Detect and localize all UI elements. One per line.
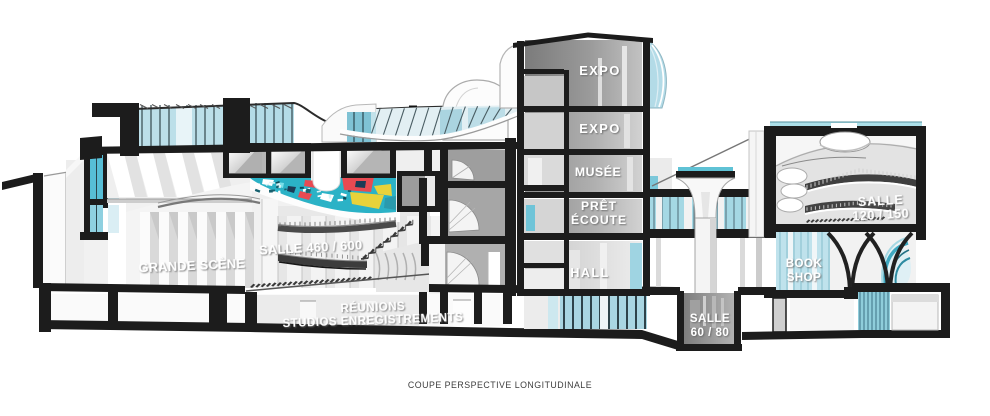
svg-text:EXPO: EXPO [579, 121, 621, 136]
svg-text:ÉCOUTE: ÉCOUTE [571, 212, 627, 227]
svg-text:MUSÉE: MUSÉE [575, 164, 621, 179]
svg-text:SALLE: SALLE [690, 313, 730, 325]
svg-text:60 / 80: 60 / 80 [691, 327, 730, 339]
svg-text:PRÊT: PRÊT [581, 198, 617, 213]
svg-text:SHOP: SHOP [787, 272, 822, 284]
svg-text:RÉUNIONS: RÉUNIONS [340, 300, 405, 315]
svg-text:EXPO: EXPO [579, 63, 621, 78]
svg-text:BOOK: BOOK [786, 258, 823, 270]
svg-text:HALL: HALL [570, 266, 609, 280]
svg-text:120 / 150: 120 / 150 [852, 207, 909, 224]
svg-text:COUPE PERSPECTIVE LONGITUDINAL: COUPE PERSPECTIVE LONGITUDINALE [408, 380, 592, 390]
